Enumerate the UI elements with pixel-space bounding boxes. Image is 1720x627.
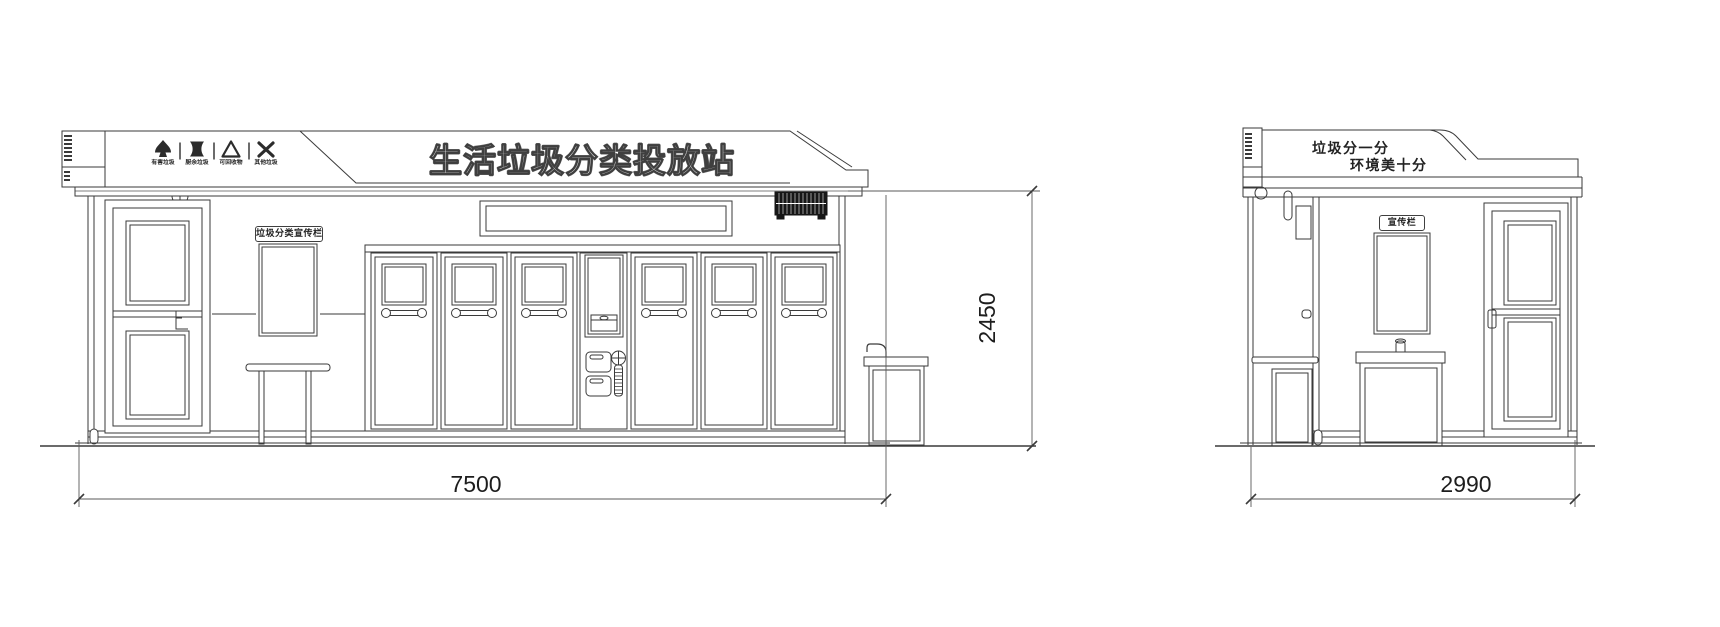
front-left-door <box>105 200 210 433</box>
recyclable-waste-icon <box>223 142 240 157</box>
side-table <box>1252 357 1318 446</box>
front-publicity-board-label: 垃圾分类宣传栏 <box>255 226 323 242</box>
blueprint-canvas: 生活垃圾分类投放站 有害垃圾 厨余垃圾 可回收物 其他垃圾 垃圾分类宣传栏 宣传… <box>0 0 1720 627</box>
other-waste-icon <box>259 143 273 156</box>
front-sink <box>864 344 928 445</box>
side-canopy-louvers <box>1245 134 1252 158</box>
faucet <box>867 344 886 358</box>
front-table <box>246 364 330 444</box>
front-foot-pad <box>90 429 98 444</box>
front-vent-grille <box>775 192 827 219</box>
dim-side-width <box>1246 440 1580 507</box>
dim-label-side-width: 2990 <box>1416 471 1516 498</box>
food-waste-label: 厨余垃圾 <box>180 157 215 166</box>
side-publicity-board <box>1374 233 1430 334</box>
dim-label-front-height: 2450 <box>973 288 1001 348</box>
side-door <box>1484 203 1568 437</box>
hazardous-waste-icon <box>155 140 171 157</box>
wall-hook <box>1302 310 1311 318</box>
canopy-left-louvers <box>64 136 72 180</box>
dim-label-front-width: 7500 <box>426 471 526 498</box>
recyclable-waste-label: 可回收物 <box>214 157 249 166</box>
side-sink <box>1356 339 1445 446</box>
hazardous-waste-label: 有害垃圾 <box>146 157 181 166</box>
hanging-strap <box>1284 191 1292 220</box>
front-chute-bank <box>365 245 840 431</box>
elevation-drawing <box>0 0 1720 627</box>
other-waste-label: 其他垃圾 <box>249 157 284 166</box>
food-waste-icon <box>190 142 204 157</box>
side-slogan-line2: 环境美十分 <box>1350 155 1428 175</box>
station-title: 生活垃圾分类投放站 <box>428 141 736 181</box>
front-banner-lightbox <box>480 201 732 236</box>
wall-bracket <box>1296 206 1311 239</box>
front-publicity-board <box>212 244 366 336</box>
side-elevation <box>1215 128 1595 446</box>
side-publicity-board-label: 宣传栏 <box>1379 215 1425 231</box>
